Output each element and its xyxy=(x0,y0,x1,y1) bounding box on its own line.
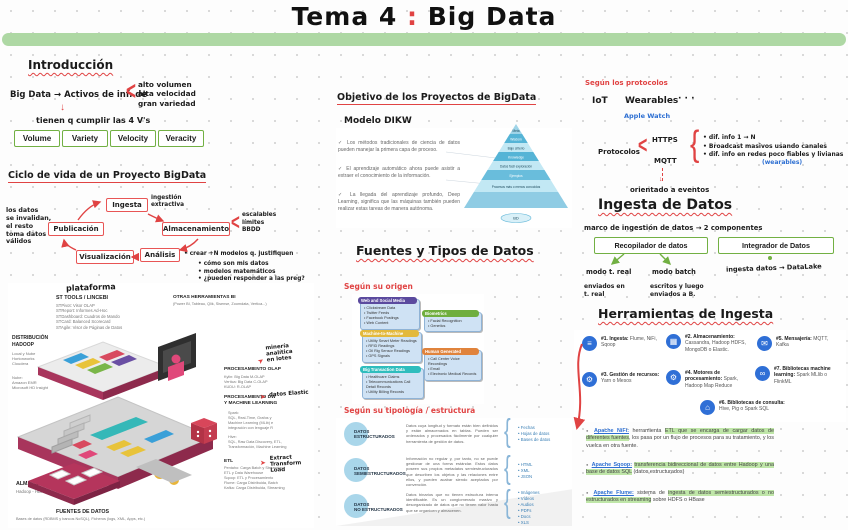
apple-watch-note: Apple Watch xyxy=(624,112,670,120)
etc-dots: · · · xyxy=(678,94,695,104)
tool-item-3-title: #3. Gestión de recursos: xyxy=(601,372,659,378)
apache-sqoop-post: (datos estructurados) xyxy=(632,469,684,475)
mensajeria-tool-icon: ✉ xyxy=(757,336,772,351)
tool-item-1: #1. Ingesta: Flume, NiFi, Sqoop xyxy=(601,336,663,349)
objetivo-bullet-3: ✓ La llegada del aprendizaje profundo, D… xyxy=(338,192,460,212)
pyramid-layer-3: Bajo criterio xyxy=(508,147,525,151)
almacenamiento-tool-icon: ▦ xyxy=(666,334,681,349)
apache-flume-bullet: ● Apache Flume: sistema de ingesta de da… xyxy=(586,490,774,505)
ingesta-heading: Ingesta de Datos xyxy=(598,197,732,213)
recopilador-arrows xyxy=(598,253,708,267)
objetivo-bullet-1-text: Los métodos tradicionales de ciencia de … xyxy=(338,140,460,153)
etl-title: ETL xyxy=(224,459,233,465)
bullet-icon: ● xyxy=(586,462,589,467)
fuentes-datos-items: Bases de datos (RDBMS y bancos NoSQL), F… xyxy=(16,517,216,522)
pyramid-layer-1: Meta xyxy=(512,129,519,133)
objetivo-heading: Objetivo de los Proyectos de BigData xyxy=(337,92,536,105)
herramientas-red-arrow xyxy=(570,342,590,434)
platform-figure: plataforma ST TOOLS / LINCEBI STPivot: V… xyxy=(8,283,314,528)
intro-brace-icon: < xyxy=(126,77,136,107)
apache-sqoop-bullet: ● Apache Sqoop: transferencia bidireccio… xyxy=(586,462,774,477)
modo-batch-label: modo batch xyxy=(652,268,696,276)
tipo-brace-2: { xyxy=(504,451,511,488)
tipo-label-1: DATOS ESTRUCTURADOS xyxy=(354,429,395,440)
integrador-note: ingesta datos → DataLake xyxy=(726,262,822,273)
dikw-pyramid: Meta Wisdom Bajo criterio Knowledge Dato… xyxy=(444,120,574,228)
srcbox-transaction-title: Big Transaction Data xyxy=(360,366,421,373)
tipo-examples-2: • HTML • XML • JSON xyxy=(518,462,532,480)
pyramid-layer-7: Procesos más o menos conocidos xyxy=(492,185,541,189)
srcbox-web-social: Web and Social Media • Clickstream Data … xyxy=(360,299,420,330)
objetivo-bullet-2-text: El aprendizaje automático ahora puede as… xyxy=(338,166,460,179)
srcbox-biometrics-items: • Facial Recognition • Genetics xyxy=(425,317,481,331)
apache-nifi-bullet: ● Apache NiFi: herramienta ETL que se en… xyxy=(586,428,774,450)
https-label: HTTPS xyxy=(652,136,678,144)
protocolos-label: Protocolos xyxy=(598,148,640,156)
apache-flume-link: Apache Flume: xyxy=(593,490,633,496)
page-title-right: Big Data xyxy=(428,2,557,31)
v-box-variety: Variety xyxy=(62,130,108,147)
tipo-brace-1: { xyxy=(504,414,511,451)
tipo-label-2: DATOS SEMIESTRUCTURADOS xyxy=(354,466,406,477)
fuentes-datos-title: FUENTES DE DATOS xyxy=(56,509,109,516)
fuentes-heading: Fuentes y Tipos de Datos xyxy=(356,243,534,258)
tool-item-6: #6. Bibliotecas de consulta: Hive, Pig o… xyxy=(719,400,789,413)
tipologia-diagram: DATOS ESTRUCTURADOS Datos cuya longitud … xyxy=(336,418,572,526)
intro-subline: tienen q cumplir las 4 V's xyxy=(36,116,150,125)
tool-item-2-title: #2. Almacenamiento: xyxy=(685,334,735,340)
srcbox-human-title: Human Generated xyxy=(422,348,479,355)
protocolos-heading: Según los protocolos xyxy=(585,79,668,87)
apache-sqoop-link: Apache Sqoop: xyxy=(592,462,632,468)
tool-item-3: #3. Gestión de recursos: Yarn o Mesos xyxy=(601,372,663,385)
etl-arrow-icon: ➤ xyxy=(260,459,266,467)
ingesta-marco: marco de ingestión de datos → 2 componen… xyxy=(584,224,762,232)
modo-batch-note: escritos y luego enviados a B. xyxy=(650,283,704,299)
dw-handwritten-note: datos Elastic xyxy=(269,390,309,399)
olap-title: PROCESAMIENTO OLAP xyxy=(224,367,281,373)
dw-arrow-icon: ➤ xyxy=(260,393,266,401)
page-title: Tema 4 : Big Data xyxy=(0,2,848,31)
olap-arrow-icon: ➤ xyxy=(256,356,265,366)
v-box-veracity: Veracity xyxy=(158,130,204,147)
down-arrow-icon: ↓ xyxy=(60,102,65,113)
tipo-label-3: DATOS NO ESTRUCTURADOS xyxy=(354,502,403,513)
page-title-left: Tema 4 xyxy=(292,2,398,31)
tool-item-6-desc: Hive, Pig o Spark SQL xyxy=(719,406,769,412)
notes-page: Tema 4 : Big Data Introducción Big Data … xyxy=(0,0,848,530)
srcbox-web-social-items: • Clickstream Data • Twitter Feeds • Fac… xyxy=(361,304,419,329)
tool-item-4-title: #4. Motores de procesamiento: xyxy=(685,370,722,382)
objetivo-bullet-2: ✓ El aprendizaje automático ahora puede … xyxy=(338,166,460,180)
pyramid-base-label: BD xyxy=(513,216,519,221)
objetivo-bullet-3-text: La llegada del aprendizaje profundo, Dee… xyxy=(338,192,460,212)
pyramid-layer-6: Ejemplos xyxy=(509,174,523,178)
srcbox-biometrics: Biometrics • Facial Recognition • Geneti… xyxy=(424,312,482,332)
isometric-illustration xyxy=(8,305,223,510)
srcbox-m2m-title: Machine-to-Machine xyxy=(360,330,419,337)
check-icon: ✓ xyxy=(338,140,344,146)
tipologia-label: Según su tipología / estructura xyxy=(344,406,475,415)
ciclo-cycle-arrows xyxy=(8,190,318,290)
apache-flume-pre: sistema de xyxy=(634,490,668,496)
olap-items: Kylin: Big Data M-OLAP Vertica: Big Data… xyxy=(224,375,267,390)
pyramid-layer-4: Knowledge xyxy=(508,156,524,160)
srcbox-m2m-items: • Utility Smart Meter Readings • RFID Re… xyxy=(363,337,421,362)
tool-item-1-title: #1. Ingesta: xyxy=(601,336,629,342)
pyramid-layer-5: Datos fácil exploración xyxy=(500,165,532,169)
tool-item-3-desc: Yarn o Mesos xyxy=(601,378,631,384)
tipo-desc-2: Información no regular y, por tanto, no … xyxy=(406,456,498,487)
tipo-desc-3: Datos binarios que no tienen estructura … xyxy=(406,492,498,513)
check-icon: ✓ xyxy=(338,166,344,172)
srcbox-transaction: Big Transaction Data • Healthcare Claims… xyxy=(362,368,424,399)
herramientas-heading: Herramientas de Ingesta xyxy=(598,306,773,321)
integrador-dot xyxy=(768,256,772,260)
otras-bi-title: OTRAS HERRAMIENTAS BI xyxy=(173,295,236,301)
consulta-tool-icon: ⌂ xyxy=(700,400,715,415)
apache-flume-post: sobre HDFS o HBase xyxy=(651,497,704,503)
tool-item-7: #7. Bibliotecas machine learning: Spark … xyxy=(774,366,840,385)
integrador-box: Integrador de Datos xyxy=(718,237,834,254)
mqtt-label: MQTT xyxy=(654,157,677,165)
tipo-examples-1: • Fechas • Hojas de datos • Bases de dat… xyxy=(518,425,550,443)
procesamiento-tool-icon: ⚙ xyxy=(666,370,681,385)
sttools-title: ST TOOLS / LINCEBI xyxy=(56,295,108,302)
tool-item-5: #5. Mensajería: MQTT, Kafka xyxy=(776,336,836,349)
intro-heading: Introducción xyxy=(28,58,113,72)
etl-handwritten-note: Extract Transform Load xyxy=(270,454,302,474)
spark-items: Spark: SQL, Real-Time, Grafos y Machine … xyxy=(228,411,273,431)
tool-item-5-title: #5. Mensajería: xyxy=(776,336,812,342)
origen-diagram: Web and Social Media • Clickstream Data … xyxy=(352,294,484,404)
apache-nifi-link: Apache NiFi: xyxy=(594,428,629,434)
tool-item-2: #2. Almacenamiento: Cassandra, Hadoop HD… xyxy=(685,334,753,353)
hive-items: Hive: SQL, Raw Data Discovery, ETL, Tran… xyxy=(228,435,287,450)
eventos-note: orientado a eventos xyxy=(630,186,709,194)
bullet-icon: ● xyxy=(586,490,590,495)
apache-nifi-pre: herramienta xyxy=(629,428,665,434)
pyramid-layer-2: Wisdom xyxy=(510,138,522,142)
modo-real-note: enviados en t. real xyxy=(584,283,625,299)
v-box-volume: Volume xyxy=(14,130,60,147)
srcbox-biometrics-title: Biometrics xyxy=(422,310,479,317)
mqtt-bracket-icon: { xyxy=(690,123,699,165)
mqtt-arrowhead-icon: ↓ xyxy=(659,176,663,183)
srcbox-web-social-title: Web and Social Media xyxy=(358,297,417,304)
ml-tool-icon: ∞ xyxy=(755,366,770,381)
srcbox-m2m: Machine-to-Machine • Utility Smart Meter… xyxy=(362,332,422,363)
wearables-label: Wearables xyxy=(625,96,678,106)
platform-handwritten-title: plataforma xyxy=(66,282,116,293)
tool-item-6-title: #6. Bibliotecas de consulta: xyxy=(719,400,785,406)
mqtt-bullets: • dif. info 1 → N • Broadcast masivos us… xyxy=(703,134,843,160)
iot-label: IoT xyxy=(592,96,608,106)
recopilador-box: Recopilador de datos xyxy=(594,237,708,254)
srcbox-human: Human Generated • Call Center Voice Reco… xyxy=(424,350,482,381)
check-icon: ✓ xyxy=(338,192,345,198)
bullet-icon: ● xyxy=(586,428,590,433)
wearables-parenthetical: (wearables) xyxy=(762,159,802,166)
green-highlight-bar xyxy=(2,33,846,46)
tool-item-4: #4. Motores de procesamiento: Spark, Had… xyxy=(685,370,753,389)
protocolos-brace-icon: < xyxy=(638,134,647,161)
srcbox-transaction-items: • Healthcare Claims • Telecommunications… xyxy=(363,373,423,398)
modo-real-label: modo t. real xyxy=(586,268,631,276)
tipo-desc-1: Datos cuya longitud y formato están bien… xyxy=(406,423,498,444)
modelo-dikw-label: Modelo DIKW xyxy=(344,116,412,126)
origen-label: Según su origen xyxy=(344,282,413,291)
tipo-examples-3: • Imágenes • Vídeos • Audios • PDFs • Do… xyxy=(518,490,540,526)
tipo-brace-3: { xyxy=(504,485,511,522)
page-title-colon: : xyxy=(407,2,418,31)
srcbox-human-items: • Call Center Voice Recordings • Email •… xyxy=(425,355,481,380)
olap-handwritten-note: minería analítica en lotes xyxy=(265,341,315,364)
tool-item-2-desc: Cassandra, Hadoop HDFS, MongoDB o Elasti… xyxy=(685,340,746,352)
intro-brace-items: alto volumen alta velocidad gran varieda… xyxy=(138,80,196,108)
v-box-velocity: Velocity xyxy=(110,130,156,147)
objetivo-bullet-1: ✓ Los métodos tradicionales de ciencia d… xyxy=(338,140,460,154)
ciclo-heading: Ciclo de vida de un Proyecto BigData xyxy=(8,170,206,183)
